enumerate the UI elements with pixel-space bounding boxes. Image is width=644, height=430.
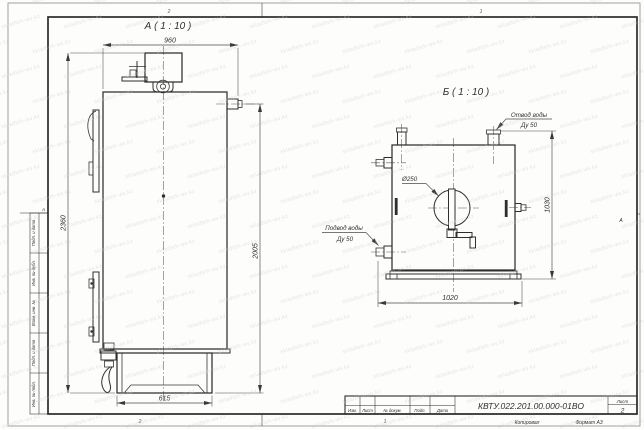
view-a: А ( 1 : 10 ) — [61, 21, 264, 407]
base-foot — [390, 274, 397, 279]
outlet-label-line1: Отвод воды — [511, 112, 548, 119]
drawing-canvas: 2 1 2 1 А А Подп. и дата Инв. № дубл. Вз… — [0, 0, 644, 430]
damper-shaft-circle-inner — [160, 84, 165, 89]
inlet-label-line2: Ду 50 — [336, 236, 354, 243]
dim-text-2360: 2360 — [61, 215, 68, 232]
base-outline — [117, 353, 212, 393]
zone-number: 2 — [138, 419, 142, 425]
base-opening — [124, 385, 205, 393]
hinge-pin — [90, 330, 92, 332]
hinge-pin — [90, 282, 92, 284]
margin-field-label: Подп. и дата — [31, 219, 36, 246]
dim-615: 615 — [117, 396, 212, 407]
document-number: КВТУ.022.201.00.000-01ВО — [478, 401, 584, 411]
title-block-col-data: Дата — [436, 408, 449, 413]
dim-2360: 2360 — [61, 53, 145, 393]
leader-line — [497, 119, 507, 130]
drawing-sheet: 2 1 2 1 А А Подп. и дата Инв. № дубл. Вз… — [0, 0, 644, 430]
title-block-col-list: Лист — [361, 408, 373, 413]
crank-handle — [447, 229, 476, 248]
zone-number: 1 — [384, 419, 387, 425]
crank-grip — [470, 237, 476, 248]
wall-slot — [505, 200, 508, 217]
water-inlet-callout: Подвод воды Ду 50 — [322, 225, 379, 246]
upper-door-hardware — [88, 110, 99, 192]
view-a-title: А ( 1 : 10 ) — [144, 21, 192, 32]
inlet-label-line1: Подвод воды — [325, 225, 363, 232]
boiler-base — [117, 353, 212, 393]
flue-diameter-callout: Ø250 — [401, 176, 439, 196]
title-block-col-podp: Подп. — [414, 408, 425, 413]
damper-bracket — [153, 82, 173, 92]
dim-text-960: 960 — [164, 38, 176, 45]
format-label: Формат А3 — [575, 420, 603, 426]
boiler-body — [103, 92, 227, 349]
title-block-col-izm: Изм. — [348, 408, 357, 413]
leader-line — [366, 233, 379, 246]
dim-1030: 1030 — [501, 131, 556, 279]
fold-mark-letter: А — [41, 207, 45, 212]
water-outlet-callout: Отвод воды Ду 50 — [497, 112, 553, 130]
dim-text-2005: 2005 — [253, 243, 260, 260]
door-hook — [88, 111, 96, 141]
hinge-tab — [89, 162, 93, 175]
base-foot — [510, 274, 517, 279]
dim-960: 960 — [103, 38, 238, 97]
lever-block — [130, 70, 136, 77]
sheet-number: 2 — [620, 408, 625, 415]
dim-2005: 2005 — [215, 104, 264, 393]
lever-bar — [122, 77, 147, 81]
damper-rod — [449, 189, 456, 230]
latch-body — [101, 351, 116, 360]
dim-1020: 1020 — [378, 261, 522, 307]
copied-by-label: Копировал — [515, 420, 540, 426]
sheet-label: Лист — [616, 399, 629, 404]
zone-number: 2 — [167, 9, 171, 15]
view-b: Б ( 1 : 10 ) — [322, 87, 556, 307]
center-dot — [162, 194, 165, 197]
damper-lever — [122, 61, 147, 81]
view-b-title: Б ( 1 : 10 ) — [443, 87, 490, 98]
margin-fields: Подп. и дата Инв. № дубл. Взам. инв. № П… — [30, 213, 48, 414]
margin-field-label: Инв. № подл. — [31, 381, 36, 407]
margin-field-label: Взам. инв. № — [31, 300, 36, 326]
latch-block — [105, 361, 114, 367]
outlet-label-line2: Ду 50 — [520, 122, 538, 129]
title-block-col-docnum: № докум. — [383, 408, 401, 413]
margin-field-label: Подп. и дата — [31, 339, 36, 366]
hinge-strip — [93, 110, 99, 192]
latch-handle — [102, 367, 112, 392]
dim-text-1020: 1020 — [442, 295, 458, 302]
zone-markers: 2 1 2 1 А А — [41, 9, 623, 425]
dim-text-615: 615 — [159, 396, 171, 403]
leader-line — [426, 184, 439, 197]
margin-field-label: Инв. № дубл. — [31, 260, 36, 286]
title-block: Изм. Лист № докум. Подп. Дата КВТУ.022.2… — [345, 396, 637, 426]
dim-text-d250: Ø250 — [401, 176, 418, 183]
fold-mark-letter: А — [618, 218, 623, 224]
dim-text-1030: 1030 — [545, 197, 552, 213]
wall-slot — [395, 198, 398, 215]
zone-number: 1 — [480, 9, 483, 15]
